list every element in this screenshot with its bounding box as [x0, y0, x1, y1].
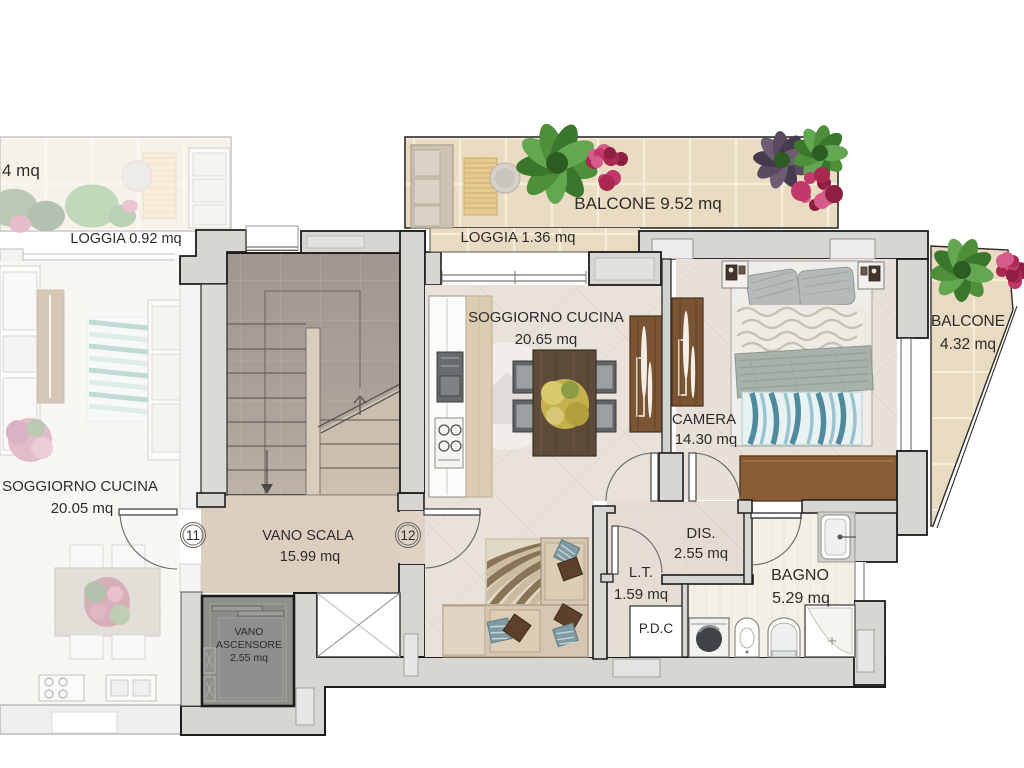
svg-text:12: 12 — [400, 528, 415, 543]
svg-text:4.32 mq: 4.32 mq — [940, 336, 996, 353]
svg-text:P.D.C: P.D.C — [639, 621, 674, 636]
svg-text:ASCENSORE: ASCENSORE — [216, 639, 282, 651]
svg-text:DIS.: DIS. — [686, 525, 715, 542]
svg-text:5.29 mq: 5.29 mq — [772, 590, 830, 607]
svg-text:CAMERA: CAMERA — [672, 411, 736, 428]
svg-text:2.55 mq: 2.55 mq — [230, 652, 268, 664]
svg-text:LOGGIA 0.92 mq: LOGGIA 0.92 mq — [70, 231, 181, 247]
svg-text:20.05 mq: 20.05 mq — [51, 500, 114, 517]
svg-text:1.59 mq: 1.59 mq — [614, 586, 668, 603]
svg-text:SOGGIORNO CUCINA: SOGGIORNO CUCINA — [468, 309, 624, 326]
svg-text:4 mq: 4 mq — [2, 161, 40, 180]
svg-text:BALCONE 9.52 mq: BALCONE 9.52 mq — [574, 194, 721, 213]
svg-text:14.30 mq: 14.30 mq — [675, 431, 738, 448]
svg-text:11: 11 — [186, 528, 200, 543]
svg-text:LOGGIA 1.36 mq: LOGGIA 1.36 mq — [460, 229, 575, 246]
svg-text:BALCONE: BALCONE — [931, 313, 1005, 330]
svg-text:VANO: VANO — [235, 626, 264, 638]
svg-text:2.55 mq: 2.55 mq — [674, 545, 728, 562]
svg-text:15.99 mq: 15.99 mq — [280, 549, 340, 565]
svg-text:VANO SCALA: VANO SCALA — [262, 528, 354, 544]
svg-text:BAGNO: BAGNO — [771, 567, 829, 584]
svg-text:20.65 mq: 20.65 mq — [515, 331, 578, 348]
svg-text:L.T.: L.T. — [629, 564, 653, 581]
svg-text:SOGGIORNO CUCINA: SOGGIORNO CUCINA — [2, 478, 158, 495]
